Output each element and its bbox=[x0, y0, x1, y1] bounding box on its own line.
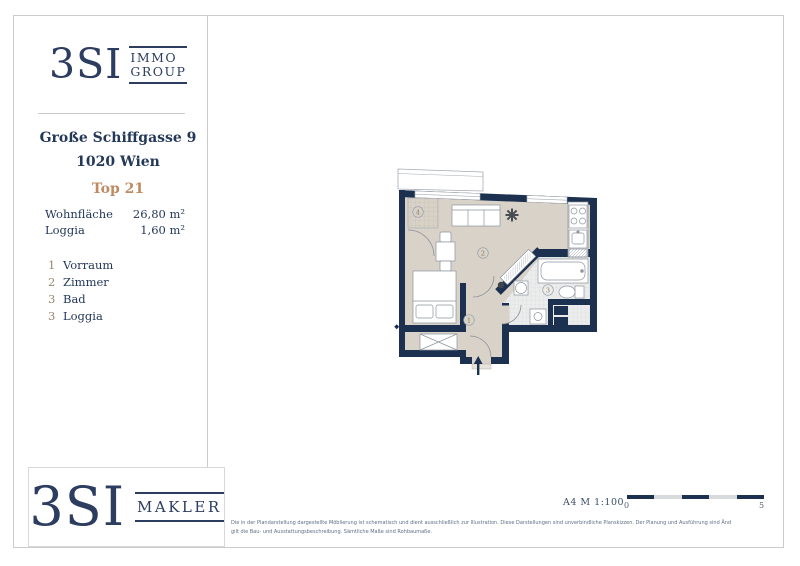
immo-group-logo: 3SI IMMO GROUP bbox=[49, 44, 187, 85]
header-divider bbox=[38, 113, 185, 114]
legend-number: 2 bbox=[48, 275, 63, 289]
room-number-vorraum: 1 bbox=[467, 316, 471, 324]
legend-label: Loggia bbox=[63, 309, 103, 323]
area-label: Loggia bbox=[45, 223, 85, 237]
area-row-loggia: Loggia 1,60 m² bbox=[28, 222, 208, 238]
legend-label: Zimmer bbox=[63, 275, 109, 289]
small-plant-icon bbox=[498, 282, 504, 288]
makler-logo: 3SI MAKLER bbox=[28, 467, 225, 547]
disclaimer-line1: Die in der Plandarstellung dargestellte … bbox=[231, 519, 731, 528]
area-label: Wohnfläche bbox=[45, 207, 113, 221]
area-value: 26,80 m² bbox=[133, 207, 185, 221]
logo-brand-text: 3SI bbox=[49, 44, 122, 85]
scale-bar bbox=[627, 495, 764, 499]
logo-subtitle: IMMO GROUP bbox=[129, 46, 187, 84]
balcony-outline bbox=[398, 169, 483, 191]
legend-row-loggia: 3 Loggia bbox=[28, 307, 208, 324]
disclaimer-text: Die in der Plandarstellung dargestellte … bbox=[231, 519, 731, 537]
scale-segment bbox=[682, 495, 709, 499]
area-table: Wohnfläche 26,80 m² Loggia 1,60 m² bbox=[28, 206, 208, 238]
scale-end-label: 5 bbox=[759, 501, 764, 510]
logo-subtitle: MAKLER bbox=[135, 492, 224, 523]
legend-row-vorraum: 1 Vorraum bbox=[28, 256, 208, 273]
kitchen-counter bbox=[568, 202, 588, 257]
room-legend: 1 Vorraum 2 Zimmer 3 Bad 3 Loggia bbox=[28, 256, 208, 324]
legend-label: Vorraum bbox=[63, 258, 113, 272]
legend-number: 3 bbox=[48, 309, 63, 323]
toilet bbox=[559, 286, 584, 298]
bathtub bbox=[538, 259, 588, 283]
legend-number: 1 bbox=[48, 258, 63, 272]
logo-sub-line1: IMMO bbox=[130, 51, 186, 65]
sofa bbox=[452, 205, 500, 226]
legend-number: 3 bbox=[48, 292, 63, 306]
logo-brand-text: 3SI bbox=[29, 480, 125, 534]
logo-sub-line2: GROUP bbox=[130, 65, 186, 79]
wardrobe bbox=[420, 334, 457, 350]
washbasin bbox=[514, 281, 528, 295]
scale-segment bbox=[654, 495, 681, 499]
address-line1: Große Schiffgasse 9 bbox=[28, 130, 208, 146]
format-scale-label: A4 M 1:100 bbox=[563, 497, 624, 508]
scale-segment bbox=[627, 495, 654, 499]
scale-segment bbox=[737, 495, 764, 499]
disclaimer-line2: gilt die Bau- und Ausstattungsbeschreibu… bbox=[231, 528, 731, 537]
floor-plan-svg: 4 2 1 3 bbox=[388, 153, 618, 383]
legend-row-bad: 3 Bad bbox=[28, 290, 208, 307]
room-number-zimmer: 2 bbox=[481, 249, 485, 257]
unit-title: Top 21 bbox=[28, 181, 208, 197]
wall-tick bbox=[394, 324, 399, 329]
room-number-loggia: 4 bbox=[416, 208, 420, 216]
area-value: 1,60 m² bbox=[140, 223, 185, 237]
washing-machine bbox=[530, 309, 546, 324]
sidebar-divider bbox=[207, 15, 208, 467]
scale-segment bbox=[709, 495, 736, 499]
scale-start-label: 0 bbox=[624, 501, 629, 510]
floor-plan: 4 2 1 3 bbox=[388, 153, 618, 383]
legend-row-zimmer: 2 Zimmer bbox=[28, 273, 208, 290]
room-number-bad: 3 bbox=[546, 286, 550, 294]
plant-icon bbox=[506, 209, 519, 222]
legend-label: Bad bbox=[63, 292, 86, 306]
area-row-wohnflaeche: Wohnfläche 26,80 m² bbox=[28, 206, 208, 222]
logo-sub-line1: MAKLER bbox=[137, 499, 222, 516]
address-line2: 1020 Wien bbox=[28, 154, 208, 170]
bed bbox=[413, 271, 456, 323]
